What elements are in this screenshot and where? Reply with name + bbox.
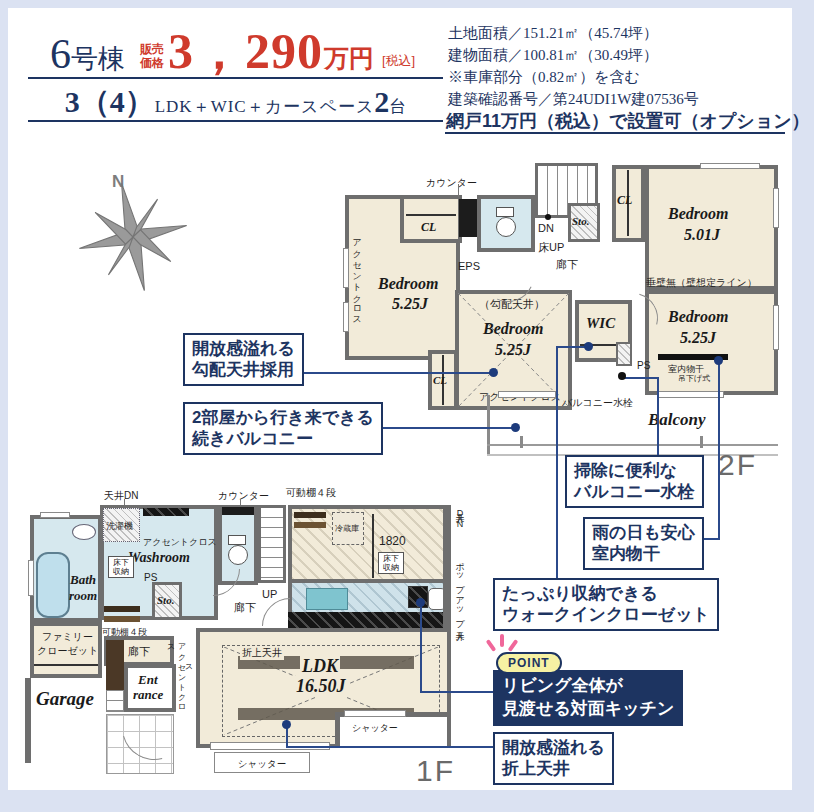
connector-kitchen-h [420, 691, 493, 693]
point-ray-2 [500, 634, 504, 647]
counter-label-2f: カウンター [426, 176, 477, 190]
price-prefix-line1: 販売 [140, 42, 164, 56]
land-area: 土地面積／151.21㎡（45.74坪） [448, 24, 658, 43]
stairs-lower-steps-1f [106, 690, 124, 712]
info-rule [445, 132, 785, 134]
entrance-label-1-1f: Ent [138, 672, 158, 688]
sto-label-1f: Sto. [157, 594, 174, 606]
shelf-top-label-1f: 可動棚４段 [286, 486, 336, 500]
shelf-bar-bath-1-1f [104, 606, 140, 612]
callout-wic: たっぷり収納できる ウォークインクローゼット [493, 578, 719, 631]
stairs-1f [258, 505, 286, 583]
callout-coffered-line1: 開放感溢れる [502, 737, 605, 758]
shutter-right-label-1f: シャッター [352, 722, 398, 735]
balcony-rail-1 [487, 444, 778, 446]
callout-balcony-faucet: 掃除に便利な バルコニー水栓 [565, 455, 704, 508]
bedroom-right-name-2f: Bedroom [668, 308, 728, 326]
header-rule-2 [28, 120, 443, 122]
eps-label-2f: EPS [458, 260, 480, 272]
window-2f-left-1 [343, 248, 349, 288]
price-value: 3，290 [168, 18, 323, 85]
callout-wic-line2: ウォークインクローゼット [502, 604, 710, 625]
stove-1f [306, 588, 348, 610]
bedroom-tr-size-2f: 5.01J [684, 226, 720, 244]
connector-kitchen-v [420, 602, 422, 693]
fridge-label-1f: 冷蔵庫 [335, 523, 359, 534]
building-area: 建物面積／100.81㎡（30.49坪） [448, 46, 658, 65]
compass-icon [68, 172, 198, 302]
window-2f-left-2 [343, 302, 349, 332]
connector-wic-v [556, 346, 558, 578]
screen-door-option: 網戸11万円（税込）で設置可（オプション） [446, 109, 810, 133]
callout-drying-line2: 室内物干 [592, 543, 695, 564]
closet-cl-top-label-2f: CL [421, 220, 436, 235]
family-closet-label-1-1f: ファミリー [42, 630, 93, 644]
bathtub-1f [36, 552, 70, 618]
bathroom-label-1-1f: Bath [70, 572, 96, 588]
window-bath-top-1f [40, 512, 70, 518]
dim-arrow-1f [372, 514, 374, 578]
shelf-bar-top-2-1f [294, 522, 326, 528]
sto-label-2f: Sto. [572, 215, 589, 227]
connector-wic-dot [584, 342, 593, 351]
no-hanging-wall-note-2f: 垂壁無（壁想定ライン） [646, 276, 757, 290]
callout-coffered-line2: 折上天井 [502, 758, 605, 779]
balcony-2f [487, 395, 778, 455]
callout-coffered-ceiling: 開放感溢れる 折上天井 [493, 732, 614, 785]
window-2f-right-2 [773, 305, 779, 350]
garage-area-note: ※車庫部分（0.82㎡）を含む [448, 68, 640, 87]
point-badge: POINT [496, 652, 562, 674]
price-tax-note: [税込] [382, 52, 415, 70]
garage-label-1f: Garage [36, 688, 94, 710]
bedroom-tr-name-2f: Bedroom [668, 205, 728, 223]
callout-faucet-line1: 掃除に便利な [574, 460, 695, 481]
counter-pointer-2f [458, 184, 459, 197]
balcony-faucet-dot-2f [618, 372, 626, 380]
accent-cloth-left-2f: アクセントクロス [350, 232, 363, 342]
shutter-bottom-label-1f: シャッター [238, 758, 286, 769]
floor-up-label-2f: 床UP [538, 240, 564, 255]
window-terrace-1f [344, 710, 406, 717]
floor-label-1f: 1F [416, 754, 455, 788]
eps-shaft-2f [459, 199, 478, 237]
bedroom-left-size-2f: 5.25J [392, 295, 428, 313]
washroom-label-1f: Washroom [128, 550, 190, 566]
window-1f-left [28, 560, 34, 596]
hallway-entrance-label-1f: 廊下 [128, 644, 150, 659]
counter-label-1f: カウンター [218, 489, 269, 503]
callout-drying-line1: 雨の日も安心 [592, 522, 695, 543]
ceiling-dn-top-label-1f: 天井DN [104, 489, 138, 503]
window-2f-top [700, 163, 760, 169]
layout-cars-num: 2 [374, 85, 389, 119]
connector-faucet-v [657, 377, 659, 455]
bedroom-left-name-2f: Bedroom [378, 275, 438, 293]
layout-text: LDK＋WIC＋カースペース [155, 95, 375, 118]
callout-wic-line1: たっぷり収納できる [502, 583, 710, 604]
bath-sink-1f [72, 524, 96, 540]
price-unit: 万円 [324, 42, 374, 75]
ldk-name-label-1f: LDK [300, 656, 340, 677]
price-prefix-line2: 価格 [140, 56, 164, 70]
underfloor-storage-1-1f: 床下収納 [108, 556, 134, 578]
family-closet-rod-1f [34, 664, 98, 666]
header-unit: 6号棟 [50, 30, 125, 78]
drying-type-label-2f: 吊下げ式 [678, 373, 710, 384]
point-line2: 見渡せる対面キッチン [502, 698, 674, 721]
ceiling-dn-right-label-1f: 天井DN [453, 506, 466, 550]
header-rule-1 [28, 77, 443, 79]
callout-faucet-line2: バルコニー水栓 [574, 481, 695, 502]
connector-coffered-h [286, 746, 493, 748]
header-layout-row: 3（4） LDK＋WIC＋カースペース 2 台 [28, 82, 443, 120]
connector-sloped-dot [489, 368, 498, 377]
family-closet-label-2-1f: クローゼット [37, 644, 98, 658]
callout-sloped-line2: 勾配天井採用 [192, 359, 295, 380]
layout-count: 3（4） [65, 82, 155, 123]
connector-sloped [298, 372, 494, 374]
toilet-counter-1f [222, 507, 254, 515]
washer-label-1f: 洗濯機 [106, 520, 133, 533]
shelf-bar-top-1-1f [294, 512, 326, 518]
unit-number: 6 [50, 31, 71, 77]
connector-drying-v [718, 360, 720, 540]
window-2f-balcony-2 [658, 391, 724, 398]
connector-coffered-dot [282, 720, 291, 729]
connector-faucet-h [622, 377, 659, 379]
closet-cl-top-2f [400, 195, 462, 243]
shutter-box-1f: シャッター [214, 752, 310, 773]
price-prefix: 販売 価格 [140, 42, 164, 70]
callout-sloped-ceiling: 開放感溢れる 勾配天井採用 [183, 333, 304, 386]
popup-ceiling-label-1f: ポップアップ天井 [453, 556, 466, 652]
balcony-post-2 [700, 436, 703, 448]
callout-balcony-access: 2部屋から行き来できる 続きバルコニー [183, 402, 383, 455]
point-line1: リビング全体が [502, 675, 674, 698]
up-label-1f: UP [262, 588, 277, 600]
bedroom-center-size-2f: 5.25J [495, 341, 531, 359]
dim-label-1f: 1820 [379, 534, 406, 548]
connector-drying-dot [714, 356, 723, 365]
bedroom-right-size-2f: 5.25J [680, 329, 716, 347]
hallway-label-2f: 廊下 [556, 257, 578, 272]
callout-indoor-drying: 雨の日も安心 室内物干 [583, 517, 704, 570]
ldk-size-label-1f: 16.50J [294, 676, 348, 697]
dn-label-2f: DN [538, 222, 554, 234]
callout-balcony-line1: 2部屋から行き来できる [192, 407, 374, 428]
window-2f-right-1 [773, 188, 779, 228]
connector-balcony [383, 427, 516, 429]
bathroom-label-2-1f: room [69, 588, 97, 604]
ps-shaft-2f [616, 342, 632, 366]
stairs-dn-dot-2f [545, 214, 551, 220]
floor-label-2f: 2F [718, 448, 757, 482]
accent-bar-washroom-1f [143, 508, 189, 516]
toilet-icon-2f [496, 207, 514, 237]
callout-point-kitchen: リビング全体が 見渡せる対面キッチン [493, 670, 683, 726]
closet-cl-bottom-label-2f: CL [433, 374, 447, 386]
bedroom-center-name-2f: Bedroom [483, 320, 543, 338]
balcony-post-1 [520, 436, 523, 448]
ps-label-2f: PS [637, 360, 650, 371]
closet-cl-right-label-2f: CL [617, 193, 632, 208]
underfloor-storage-2-1f: 床下収納 [378, 552, 404, 574]
layout-cars-unit: 台 [389, 95, 406, 118]
confirmation-number: 建築確認番号／第24UDI1W建07536号 [448, 90, 699, 109]
window-2f-balcony-1 [498, 391, 556, 398]
connector-kitchen-dot [416, 598, 425, 607]
hallway-stairs-label-1f: 廊下 [234, 600, 256, 615]
callout-balcony-line2: 続きバルコニー [192, 428, 374, 449]
callout-sloped-line1: 開放感溢れる [192, 338, 295, 359]
unit-suffix: 号棟 [71, 44, 125, 74]
closet-rod-2f [406, 214, 456, 216]
stairs-lower-dark-1f [106, 640, 124, 690]
connector-balcony-dot [511, 423, 520, 432]
shelf-bar-bath-2-1f [104, 616, 140, 622]
